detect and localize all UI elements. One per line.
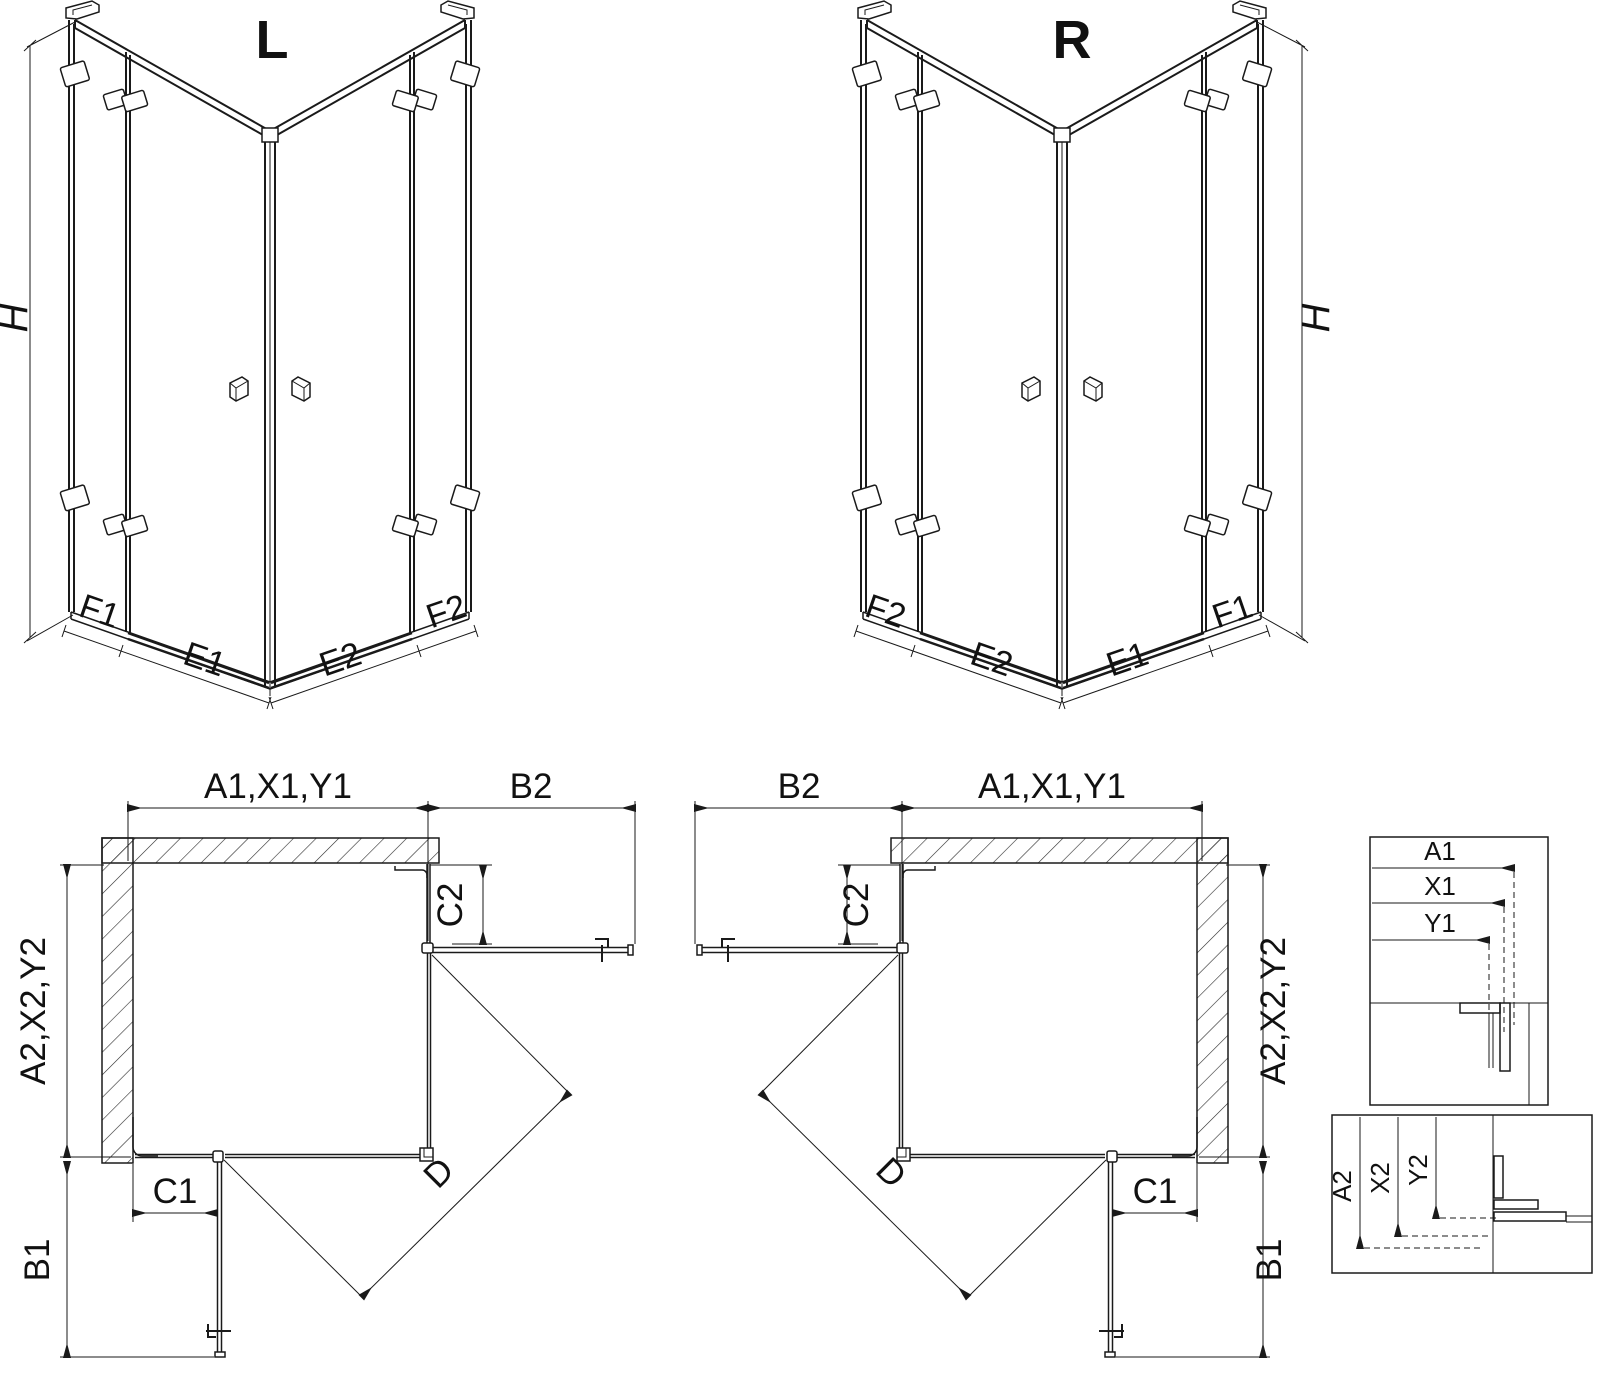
wall-right-hatched [1197,838,1228,1163]
label-a2x2y2-right: A2,X2,Y2 [1254,937,1293,1085]
iso-view-left: L H F1 E1 E2 F2 [0,1,480,709]
wall-top-hatched [102,838,439,863]
iso-left-title: L [256,10,289,70]
detail-label-y2: Y2 [1403,1154,1433,1186]
label-h: H [0,303,36,332]
iso-view-right: R H F2 E2 E1 F1 [852,1,1338,709]
shower-enclosure-technical-drawing: L H F1 E1 E2 F2 R H F2 E2 E1 F1 A1,X1,Y1… [0,0,1600,1373]
detail-label-a2: A2 [1327,1170,1357,1202]
corner-profile-section-top [1460,1003,1529,1105]
label-f2: F2 [421,587,471,636]
detail-label-x2: X2 [1365,1162,1395,1194]
label-c1: C1 [153,1172,198,1211]
detail-panel-top: A1 X1 Y1 [1370,836,1548,1105]
label-h-right: H [1294,303,1338,332]
drawing-canvas: L H F1 E1 E2 F2 R H F2 E2 E1 F1 A1,X1,Y1… [0,0,1600,1373]
corner-profile-section-bottom [1494,1156,1592,1222]
label-a1x1y1: A1,X1,Y1 [204,767,352,806]
wall-left-hatched [102,838,133,1163]
plan-view-left: A1,X1,Y1 B2 C2 A2,X2,Y2 B1 C1 D [14,767,635,1357]
label-c2-right: C2 [837,883,876,928]
detail-label-x1: X1 [1424,871,1456,901]
label-c1-right: C1 [1133,1172,1178,1211]
label-b1: B1 [18,1239,57,1282]
iso-right-title: R [1053,10,1092,70]
detail-label-y1: Y1 [1424,908,1456,938]
label-b2-right: B2 [778,767,821,806]
label-e2-right: E2 [966,635,1018,684]
detail-panel-bottom: A2 X2 Y2 [1327,1115,1592,1273]
label-a1x1y1-right: A1,X1,Y1 [978,767,1126,806]
label-b2: B2 [510,767,553,806]
label-e1: E1 [179,635,231,684]
label-b1-right: B1 [1250,1239,1289,1282]
label-c2: C2 [431,883,470,928]
label-f2-right: F2 [861,587,911,636]
label-e1-right: E1 [1102,635,1154,684]
detail-label-a1: A1 [1424,836,1456,866]
wall-top-hatched-right [891,838,1228,863]
label-a2x2y2: A2,X2,Y2 [14,937,53,1085]
label-e2: E2 [315,635,367,684]
plan-view-right: A1,X1,Y1 B2 C2 A2,X2,Y2 B1 C1 D [695,767,1293,1357]
